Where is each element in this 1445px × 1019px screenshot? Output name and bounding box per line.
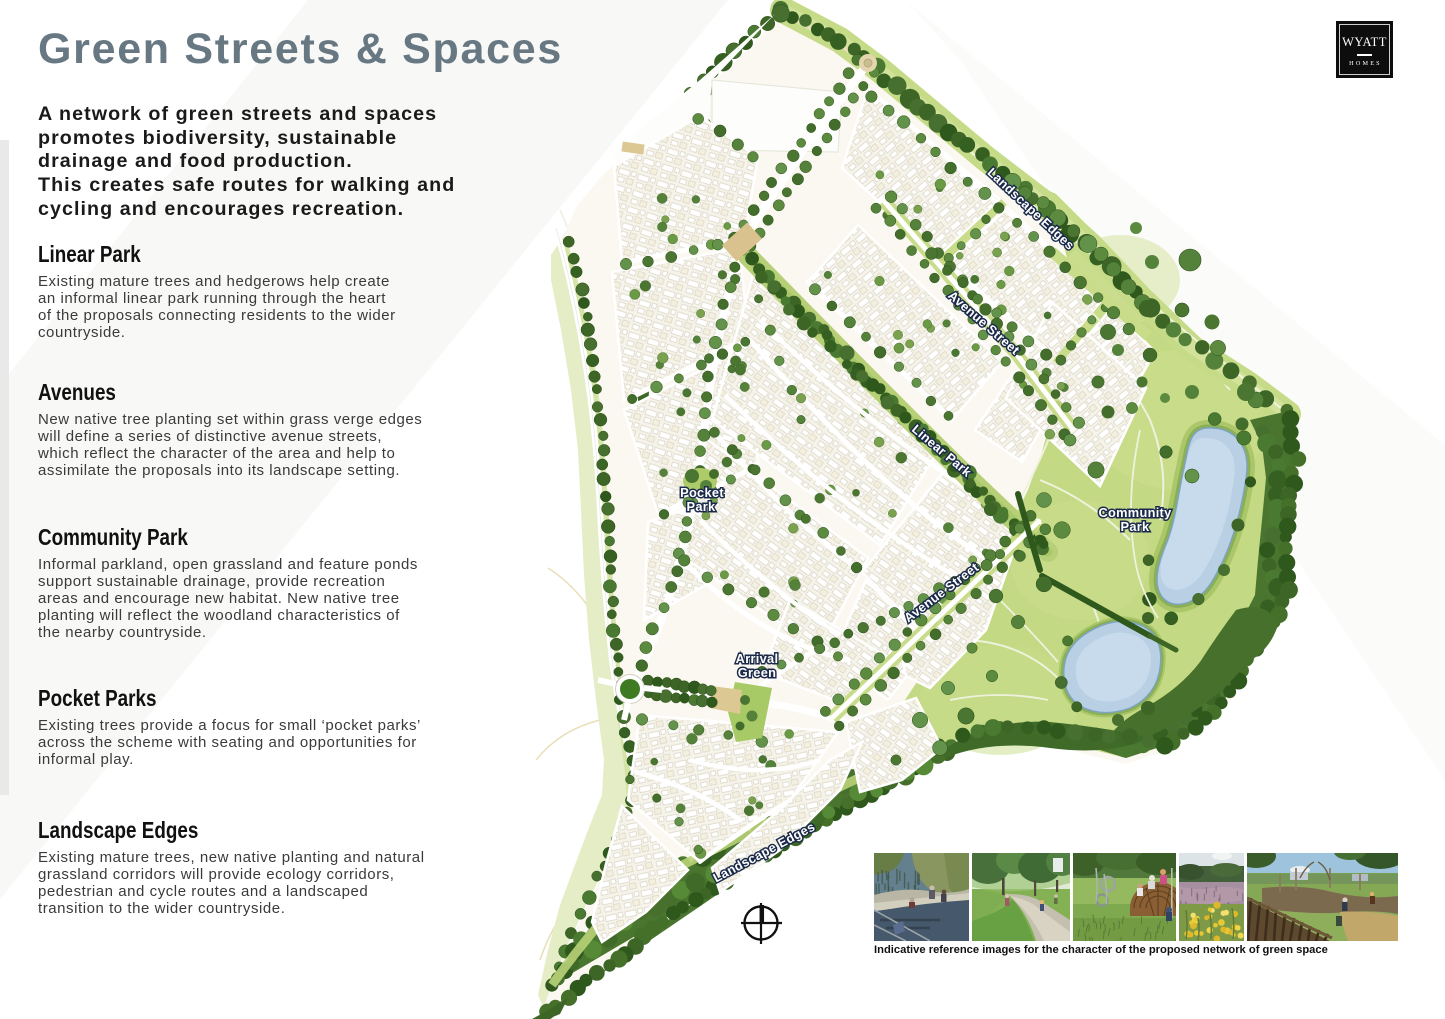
svg-text:Park: Park <box>1121 519 1151 534</box>
svg-text:Green: Green <box>738 665 777 680</box>
svg-text:Community: Community <box>1098 505 1172 520</box>
svg-text:Pocket: Pocket <box>680 485 724 500</box>
svg-text:Park: Park <box>687 499 717 514</box>
svg-text:Arrival: Arrival <box>736 651 779 666</box>
